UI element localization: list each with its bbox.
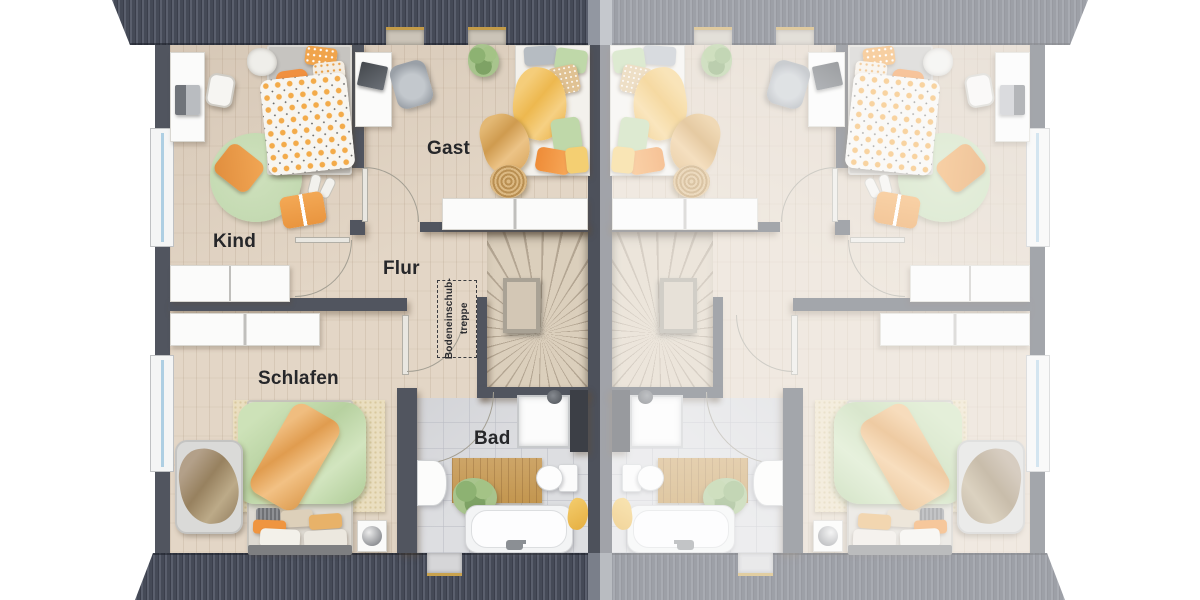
attic-hatch-note: Bodeneinschub- treppe	[437, 280, 477, 358]
gast-pillow-gray	[523, 45, 557, 66]
roof-dormer-window	[386, 27, 424, 45]
room-label-flur: Flur	[383, 258, 420, 280]
wall-schlafen-bad	[397, 388, 417, 553]
exterior-wall-left	[1030, 45, 1045, 553]
kind-wardrobe	[170, 265, 290, 302]
kind-sheepskin-rug	[923, 48, 953, 76]
bath-shower	[630, 395, 683, 448]
kind-wardrobe	[910, 265, 1030, 302]
bath-niche-shelf	[612, 390, 630, 452]
roof-band-top	[112, 0, 600, 45]
unit-right-mirrored: Kind Gast Flur Schlafen Bad Bodeneinschu…	[600, 0, 1100, 600]
schlafen-headboard	[248, 545, 352, 555]
bath-sink	[417, 460, 447, 506]
bath-toilet-bowl	[637, 465, 664, 491]
roof-band-bottom	[135, 553, 600, 600]
kind-laptop	[1000, 85, 1025, 115]
wall-stairwell	[477, 297, 487, 398]
wall-schlafen-bad	[783, 388, 803, 553]
kind-chair	[963, 72, 995, 109]
kind-sheepskin-rug	[247, 48, 277, 76]
party-wall-bottom	[600, 553, 612, 600]
roof-band-bottom	[600, 553, 1065, 600]
bath-tub-faucet	[677, 540, 694, 550]
unit-left: Kind Gast Flur Schlafen Bad Bodeneinschu…	[100, 0, 600, 600]
floorplan-canvas: Kind Gast Flur Schlafen Bad Bodeneinschu…	[0, 0, 1200, 600]
roof-dormer-window	[776, 27, 814, 45]
schlafen-pillow-tan	[309, 513, 343, 530]
roof-dormer-window	[468, 27, 506, 45]
gast-pillow-gray	[642, 45, 676, 66]
room-label-bad: Bad	[474, 428, 511, 450]
stairwell-opening	[660, 278, 697, 333]
gast-plant	[701, 44, 732, 77]
bath-toilet-bowl	[536, 465, 563, 491]
wall-stairwell	[713, 297, 723, 398]
schlafen-sphere-lamp	[818, 526, 838, 546]
window	[150, 128, 174, 247]
gast-plant	[468, 44, 499, 77]
wall-stub	[350, 220, 365, 235]
roof-window-bath	[427, 553, 462, 576]
party-wall-top	[600, 0, 612, 45]
roof-band-top	[600, 0, 1088, 45]
schlafen-sideboard	[170, 313, 320, 346]
gast-pillow-yellow	[611, 146, 636, 174]
roof-dormer-window	[694, 27, 732, 45]
kind-duvet-polka	[259, 72, 356, 177]
bath-shower	[517, 395, 570, 448]
window	[1026, 355, 1050, 472]
window	[150, 355, 174, 472]
window	[1026, 128, 1050, 247]
schlafen-headboard	[848, 545, 952, 555]
schlafen-pillow-tan	[858, 513, 892, 530]
room-label-kind: Kind	[213, 231, 256, 253]
bath-sink	[753, 460, 783, 506]
bath-shower-head	[547, 390, 562, 404]
gast-sideboard	[442, 198, 588, 230]
schlafen-sideboard	[880, 313, 1030, 346]
bath-shower-head	[638, 390, 653, 404]
party-wall-top	[588, 0, 600, 45]
room-label-schlafen: Schlafen	[258, 368, 339, 390]
wall-stub	[835, 220, 850, 235]
stairwell-opening	[503, 278, 540, 333]
gast-basket	[673, 165, 710, 198]
bath-tub-faucet	[506, 540, 523, 550]
gast-sideboard	[612, 198, 758, 230]
roof-window-bath	[738, 553, 773, 576]
bath-niche-shelf	[570, 390, 588, 452]
room-label-gast: Gast	[427, 138, 470, 160]
kind-laptop	[175, 85, 200, 115]
gast-basket	[490, 165, 527, 198]
kind-duvet-polka	[844, 72, 941, 177]
party-wall-bottom	[588, 553, 600, 600]
schlafen-sphere-lamp	[362, 526, 382, 546]
attic-hatch-note-text: Bodeneinschub- treppe	[442, 278, 472, 359]
gast-pillow-yellow	[565, 146, 590, 174]
